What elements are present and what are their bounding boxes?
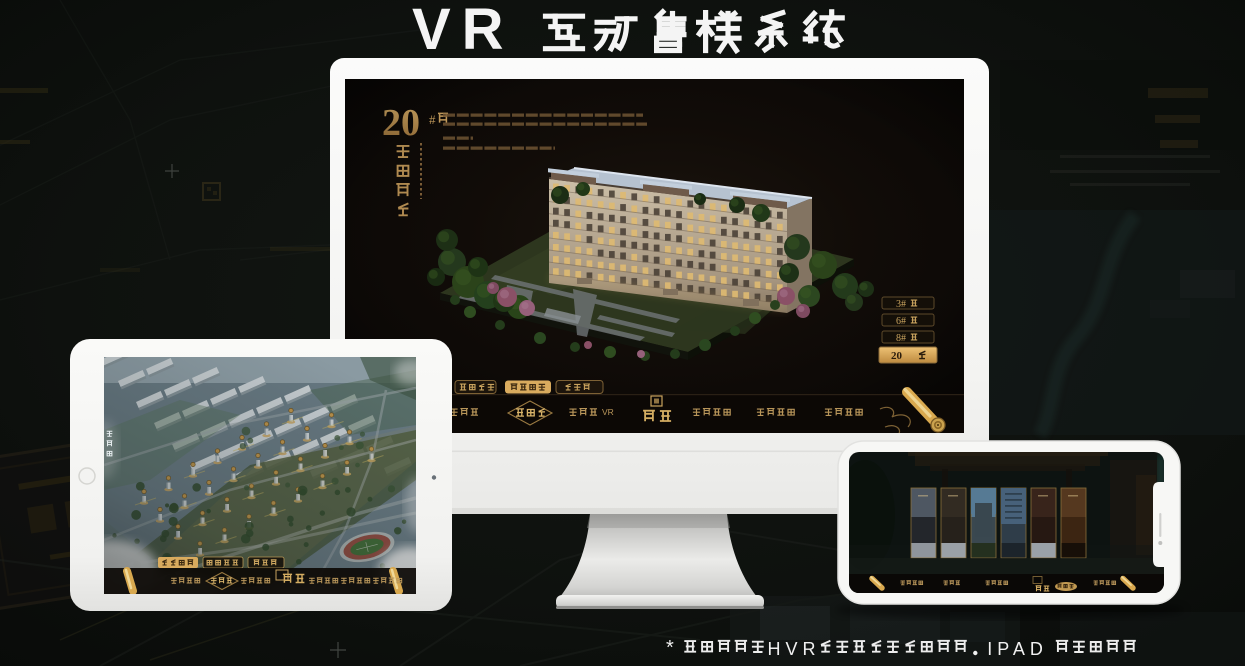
svg-text:HVR: HVR xyxy=(768,639,821,659)
svg-text:8#: 8# xyxy=(896,333,906,344)
svg-text:*: * xyxy=(666,637,674,659)
svg-text:20: 20 xyxy=(891,350,903,362)
svg-text:6#: 6# xyxy=(896,316,906,327)
svg-text:VR: VR xyxy=(602,407,614,417)
svg-text:3#: 3# xyxy=(896,299,906,310)
svg-text:IPAD: IPAD xyxy=(987,639,1048,659)
